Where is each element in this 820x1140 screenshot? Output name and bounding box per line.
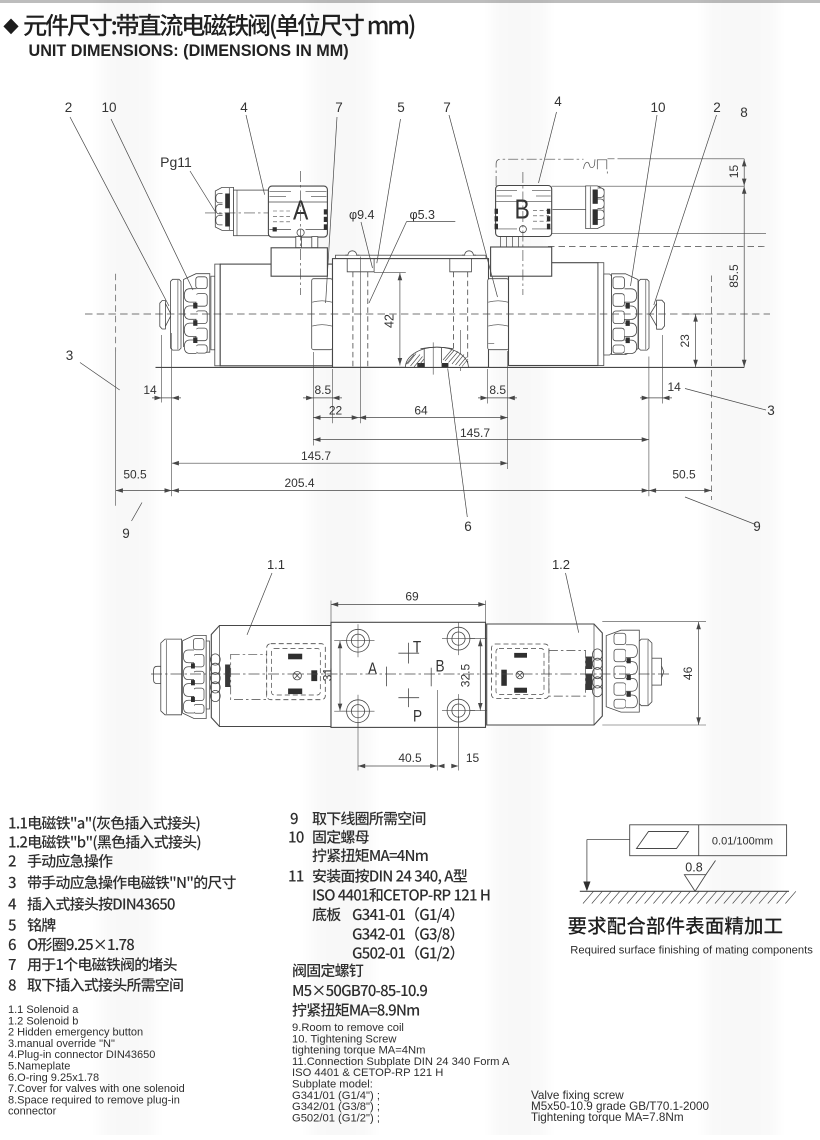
svg-text:32.5: 32.5 [458, 663, 472, 687]
svg-text:8.5: 8.5 [314, 383, 331, 397]
svg-text:5.Nameplate: 5.Nameplate [8, 1061, 70, 1073]
svg-text:Tightening torque MA=7.8Nm: Tightening torque MA=7.8Nm [531, 1111, 684, 1124]
svg-text:3: 3 [66, 348, 74, 363]
svg-text:1.2: 1.2 [552, 557, 570, 572]
svg-text:ISO 4401 & CETOP-RP 121 H: ISO 4401 & CETOP-RP 121 H [292, 1067, 443, 1079]
svg-text:69: 69 [405, 590, 419, 604]
svg-text:10: 10 [101, 100, 116, 115]
svg-text:1.1: 1.1 [267, 557, 285, 572]
svg-text:50.5: 50.5 [123, 468, 147, 482]
svg-text:11.Connection Subplate DIN 24: 11.Connection Subplate DIN 24 340 Form A [292, 1056, 510, 1068]
svg-text:6.O-ring 9.25x1.78: 6.O-ring 9.25x1.78 [8, 1072, 99, 1084]
svg-text:145.7: 145.7 [460, 426, 490, 440]
svg-text:7: 7 [335, 100, 343, 115]
svg-text:A: A [293, 195, 309, 226]
svg-text:8: 8 [740, 105, 748, 120]
svg-text:tightening torque MA=4Nm: tightening torque MA=4Nm [292, 1045, 425, 1057]
svg-text:40.5: 40.5 [398, 751, 422, 765]
svg-text:Pg11: Pg11 [160, 154, 192, 170]
svg-text:G342/01 (G3/8") ;: G342/01 (G3/8") ; [292, 1101, 380, 1113]
svg-text:2: 2 [713, 100, 721, 115]
svg-text:8.5: 8.5 [489, 383, 506, 397]
svg-text:1.2 Solenoid b: 1.2 Solenoid b [8, 1015, 78, 1027]
svg-text:46: 46 [681, 666, 695, 680]
svg-text:B: B [515, 194, 530, 225]
svg-text:10: 10 [650, 100, 665, 115]
svg-text:G341/01 (G1/4") ;: G341/01 (G1/4") ; [292, 1090, 380, 1102]
svg-text:22: 22 [329, 403, 343, 417]
svg-text:15: 15 [727, 165, 741, 179]
svg-text:8.Space required to remove plu: 8.Space required to remove plug-in [8, 1094, 180, 1106]
svg-text:50.5: 50.5 [672, 468, 696, 482]
svg-text:15: 15 [466, 751, 480, 765]
svg-text:9: 9 [753, 519, 761, 534]
svg-text:9.Room to remove coil: 9.Room to remove coil [292, 1022, 404, 1034]
svg-text:T: T [413, 638, 422, 657]
svg-text:Subplate model:: Subplate model: [292, 1079, 373, 1091]
svg-text:G502/01 (G1/2") ;: G502/01 (G1/2") ; [292, 1112, 380, 1124]
svg-text:5: 5 [397, 100, 405, 115]
svg-text:6: 6 [464, 519, 472, 534]
svg-text:9: 9 [122, 526, 130, 541]
svg-text:14: 14 [668, 380, 682, 394]
svg-text:Required surface finishing of: Required surface finishing of mating com… [570, 945, 813, 957]
svg-text:31: 31 [321, 668, 335, 682]
svg-text:7: 7 [443, 100, 451, 115]
svg-text:connector: connector [8, 1106, 57, 1118]
svg-text:P: P [413, 707, 422, 726]
svg-text:φ5.3: φ5.3 [410, 208, 436, 222]
svg-text:1.1 Solenoid a: 1.1 Solenoid a [8, 1004, 79, 1016]
svg-text:B: B [435, 657, 444, 676]
svg-text:4: 4 [240, 100, 248, 115]
svg-text:14: 14 [143, 383, 157, 397]
svg-text:145.7: 145.7 [301, 449, 331, 463]
svg-text:205.4: 205.4 [284, 476, 314, 490]
svg-text:φ9.4: φ9.4 [349, 208, 375, 222]
svg-text:UNIT DIMENSIONS: (DIMENSIONS I: UNIT DIMENSIONS: (DIMENSIONS IN MM) [29, 42, 349, 60]
svg-text:64: 64 [414, 403, 428, 417]
svg-text:3.manual override "N": 3.manual override "N" [8, 1038, 115, 1050]
svg-text:4: 4 [554, 94, 562, 109]
svg-text:0.01/100mm: 0.01/100mm [712, 836, 773, 848]
svg-text:10. Tightening Screw: 10. Tightening Screw [292, 1033, 397, 1045]
svg-text:4.Plug-in connector DIN43650: 4.Plug-in connector DIN43650 [8, 1049, 155, 1061]
svg-text:2 Hidden emergency button: 2 Hidden emergency button [8, 1027, 143, 1039]
svg-text:85.5: 85.5 [727, 264, 741, 288]
svg-text:42: 42 [382, 314, 396, 328]
svg-text:7.Cover for valves with one so: 7.Cover for valves with one solenoid [8, 1083, 185, 1095]
svg-text:2: 2 [65, 100, 73, 115]
svg-text:3: 3 [767, 403, 775, 418]
svg-text:A: A [368, 660, 377, 679]
svg-text:23: 23 [678, 334, 692, 348]
svg-text:0.8: 0.8 [685, 861, 702, 875]
